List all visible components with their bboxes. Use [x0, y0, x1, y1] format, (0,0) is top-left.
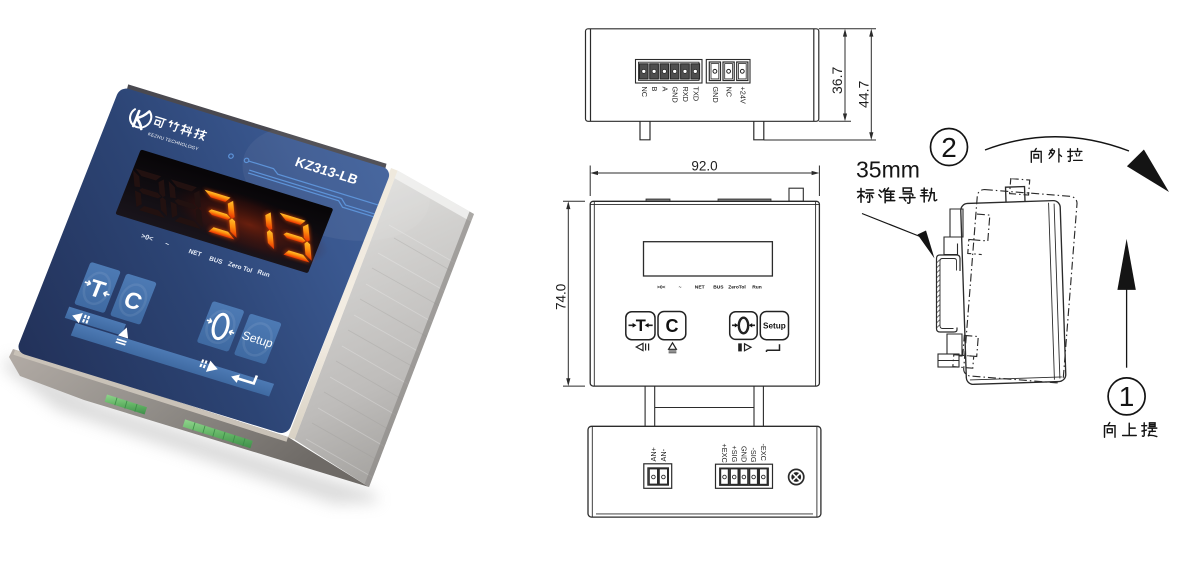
svg-text:ZeroTol: ZeroTol: [728, 285, 746, 291]
svg-text:NC: NC: [640, 87, 649, 98]
svg-text:-SIG: -SIG: [749, 448, 758, 463]
svg-text:2: 2: [941, 132, 957, 163]
svg-text:Run: Run: [752, 285, 762, 291]
svg-text:92.0: 92.0: [691, 158, 717, 173]
svg-text:>0<: >0<: [657, 285, 666, 291]
svg-text:C: C: [666, 316, 679, 336]
svg-text:~: ~: [679, 286, 682, 291]
svg-text:74.0: 74.0: [553, 284, 568, 310]
svg-text:AN-: AN-: [659, 448, 668, 461]
svg-text:RXD: RXD: [681, 87, 690, 102]
svg-text:B: B: [650, 87, 659, 92]
svg-text:+EXC: +EXC: [720, 444, 729, 463]
svg-text:+SIG: +SIG: [730, 446, 739, 463]
svg-text:TXD: TXD: [691, 87, 700, 102]
svg-text:NC: NC: [725, 87, 734, 98]
svg-text:Setup: Setup: [763, 321, 786, 330]
svg-text:AN+: AN+: [649, 447, 658, 461]
svg-text:A: A: [660, 87, 669, 92]
svg-text:BUS: BUS: [713, 285, 724, 291]
svg-text:1: 1: [1119, 381, 1135, 412]
svg-text:35mm: 35mm: [856, 157, 920, 183]
svg-text:T: T: [636, 317, 646, 335]
svg-text:36.7: 36.7: [829, 67, 845, 94]
svg-text:GND: GND: [671, 87, 680, 103]
svg-text:44.7: 44.7: [855, 81, 871, 108]
svg-text:GND: GND: [711, 87, 720, 103]
svg-text:NET: NET: [695, 285, 705, 291]
svg-text:GND: GND: [740, 446, 749, 462]
svg-text:+24V: +24V: [738, 87, 747, 104]
svg-text:-EXC: -EXC: [759, 444, 768, 461]
